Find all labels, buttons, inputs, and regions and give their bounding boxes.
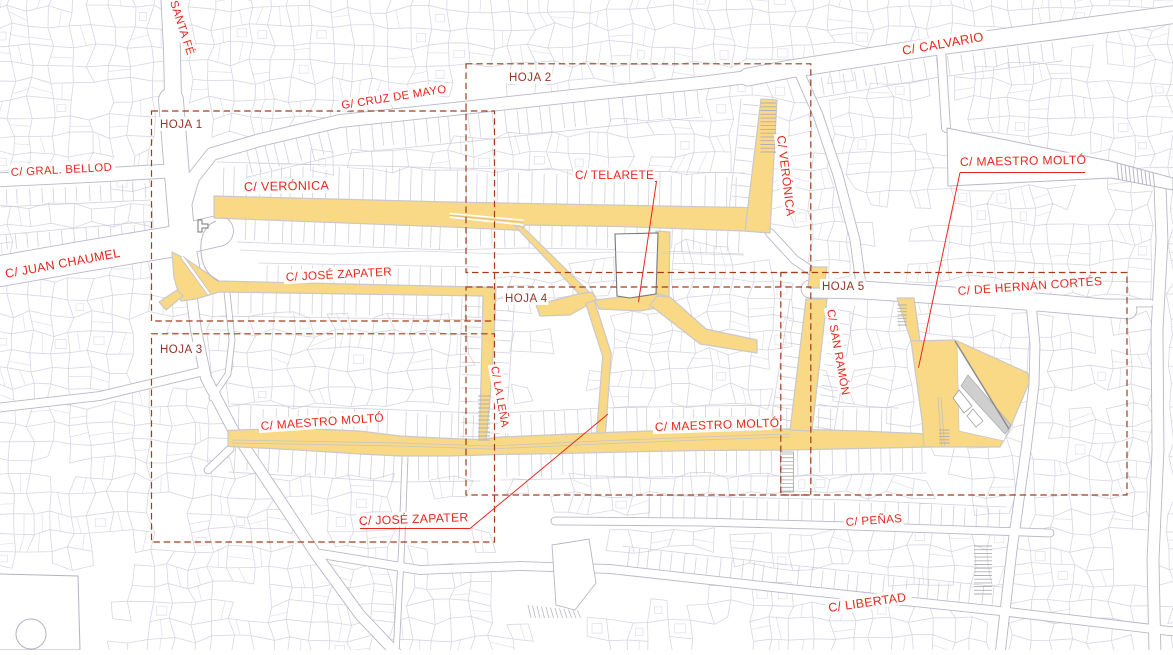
svg-text:HOJA 2: HOJA 2: [509, 72, 552, 84]
svg-text:C/ VERÓNICA: C/ VERÓNICA: [244, 178, 330, 194]
svg-text:HOJA 5: HOJA 5: [822, 281, 865, 293]
svg-text:HOJA 4: HOJA 4: [505, 293, 548, 305]
svg-text:C/ MAESTRO MOLTÓ: C/ MAESTRO MOLTÓ: [960, 152, 1087, 169]
svg-text:C/ TELARETE: C/ TELARETE: [575, 168, 654, 182]
svg-text:HOJA 3: HOJA 3: [160, 344, 203, 356]
svg-text:HOJA 1: HOJA 1: [160, 119, 203, 131]
